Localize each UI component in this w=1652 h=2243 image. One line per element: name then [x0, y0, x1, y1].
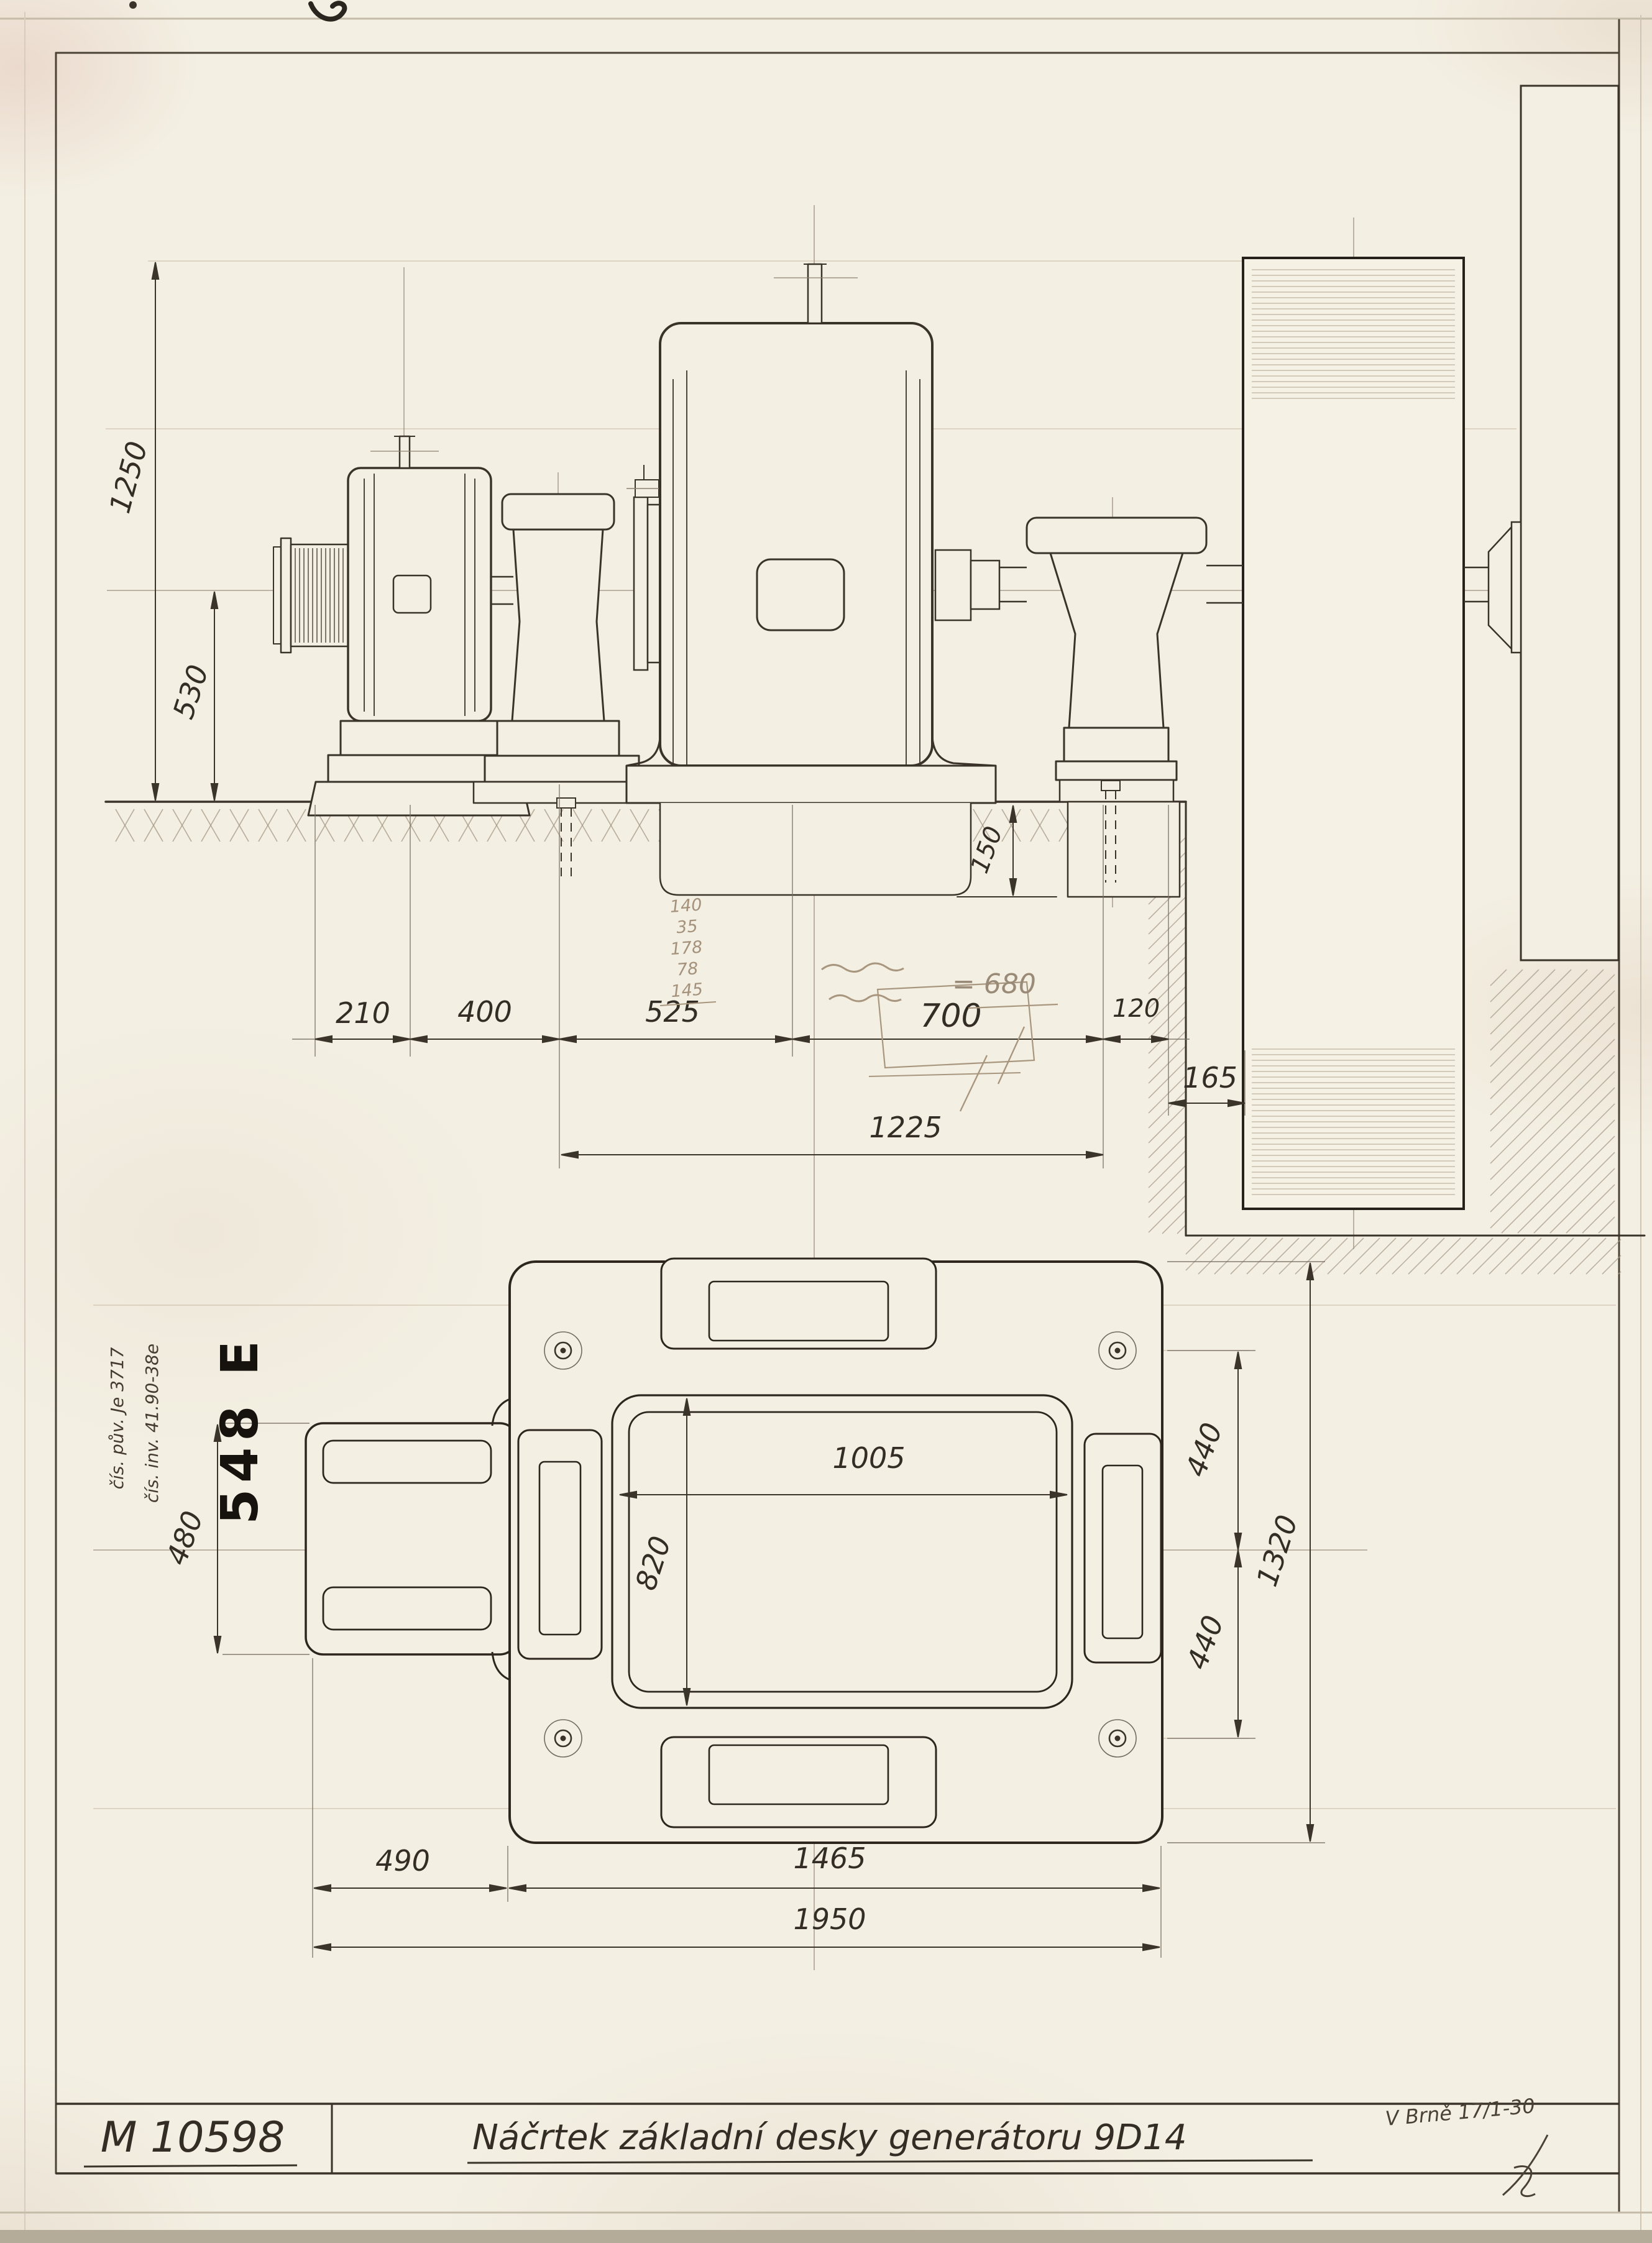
dim-arrowhead: [410, 1036, 427, 1042]
generator-shaft-stub: [808, 264, 822, 323]
dim-arrowhead: [315, 1036, 332, 1042]
baseplate-arm: [306, 1397, 517, 1682]
dim-arrowhead: [1086, 1036, 1103, 1042]
pedestal-footing: [1068, 802, 1180, 897]
pencil-annotations: = 680 140 35 178 78 145: [660, 895, 1058, 1111]
pencil-note-680: = 680: [952, 968, 1036, 1000]
dim-arrowhead: [314, 1944, 331, 1950]
dim-arrowhead: [1086, 1152, 1103, 1158]
generator-terminal-box: [757, 559, 844, 630]
dim-arrowhead: [1010, 805, 1016, 822]
slot-top: [709, 1282, 888, 1341]
pedestal-body: [512, 530, 604, 721]
dim-arrowhead: [1235, 1352, 1241, 1369]
dim-arrowhead: [1307, 1825, 1313, 1842]
dim-arrowhead: [214, 1636, 221, 1653]
dim-150: 150: [965, 823, 1008, 877]
generator-body: [660, 323, 932, 766]
dim-440-top: 440: [1179, 1418, 1229, 1481]
drawing-paper: 1250 530 150 210 400 525 700 120 165 122…: [0, 0, 1652, 2243]
right-wall-hatch: [1490, 970, 1615, 1233]
dim-arrowhead: [561, 1152, 578, 1158]
signature: [1503, 2135, 1548, 2196]
dim-arrowhead: [1103, 1036, 1120, 1042]
generator-plinth: [626, 766, 996, 803]
exciter-terminal-box: [393, 576, 431, 613]
title-block: M 10598 Náčrtek základní desky generátor…: [56, 2094, 1619, 2196]
dim-arrowhead: [1143, 1944, 1160, 1950]
dim-arrowhead: [1235, 1720, 1241, 1737]
dim-400: 400: [457, 995, 512, 1029]
slot-left: [539, 1462, 580, 1635]
pencil-scribble-1: [822, 963, 904, 972]
wall-coupling: [1464, 522, 1521, 653]
side-note-1: čís. pův. Je 3717: [107, 1347, 127, 1489]
plan-view: 1005 820 480 440 440 1320 490 1465 1950: [160, 1259, 1325, 1958]
dim-1465: 1465: [793, 1842, 866, 1875]
flywheel: [1243, 258, 1464, 1209]
dim-arrowhead: [211, 592, 218, 608]
arm-slot-bottom: [323, 1587, 491, 1630]
dim-165: 165: [1183, 1061, 1237, 1094]
place-date-note: V Brně 17/1-30: [1384, 2094, 1536, 2131]
dim-1005: 1005: [832, 1441, 905, 1475]
drawing-sheet: 1250 530 150 210 400 525 700 120 165 122…: [0, 0, 1652, 2243]
dim-490: 490: [375, 1844, 430, 1878]
dim-210: 210: [336, 996, 390, 1030]
dim-arrowhead: [792, 1036, 809, 1042]
dim-arrowhead: [1307, 1263, 1313, 1280]
slot-bottom: [709, 1745, 888, 1804]
dim-arrowhead: [393, 1036, 410, 1042]
bearing-pedestal-left: [474, 494, 639, 803]
pit-floor-hatch: [1186, 1238, 1621, 1274]
ink-blot: [311, 3, 344, 19]
dim-arrowhead: [152, 262, 158, 279]
dim-arrowhead: [776, 1036, 792, 1042]
pencil-calc-column: 140 35 178 78 145: [664, 895, 714, 1001]
dim-1250: 1250: [103, 438, 154, 516]
dim-arrowhead: [559, 1036, 576, 1042]
dim-530: 530: [167, 661, 215, 723]
drawing-title: Náčrtek základní desky generátoru 9D14: [472, 2117, 1186, 2158]
dim-arrowhead: [1010, 879, 1016, 896]
dim-arrowhead: [509, 1885, 526, 1891]
drawing-number: M 10598: [101, 2113, 285, 2162]
dim-arrowhead: [152, 784, 158, 800]
side-note-2: čís. inv. 41.90-38e: [142, 1344, 162, 1503]
dim-arrowhead: [1235, 1533, 1241, 1550]
dim-arrowhead: [314, 1885, 331, 1891]
dim-arrowhead: [1143, 1885, 1160, 1891]
dim-1225: 1225: [869, 1111, 942, 1144]
bearing-pedestal-right: [1027, 518, 1206, 897]
slot-right: [1103, 1466, 1142, 1638]
dim-1950: 1950: [793, 1902, 866, 1936]
arm-slot-top: [323, 1441, 491, 1483]
archive-marks: 548 E čís. pův. Je 3717 čís. inv. 41.90-…: [107, 1334, 270, 1525]
dim-1320: 1320: [1250, 1511, 1305, 1590]
dim-120: 120: [1113, 994, 1160, 1023]
dim-arrowhead: [543, 1036, 559, 1042]
right-wall: [1521, 86, 1618, 960]
baseplate: [510, 1259, 1162, 1843]
dim-480: 480: [160, 1507, 210, 1569]
elevation-view: 1250 530 150 210 400 525 700 120 165 122…: [103, 86, 1645, 1274]
archive-stamp: 548 E: [211, 1334, 270, 1525]
dim-arrowhead: [1235, 1550, 1241, 1567]
dim-700: 700: [920, 998, 981, 1035]
exciter-shaft-stub: [400, 436, 410, 468]
foundation-pocket: [660, 803, 971, 895]
paper-bottom-edge: [0, 2230, 1652, 2243]
dim-440-bottom: 440: [1180, 1611, 1231, 1674]
dim-arrowhead: [490, 1885, 507, 1891]
pencil-scribble-2: [829, 995, 901, 1001]
dim-arrowhead: [211, 784, 218, 800]
ink-dot: [129, 1, 137, 9]
